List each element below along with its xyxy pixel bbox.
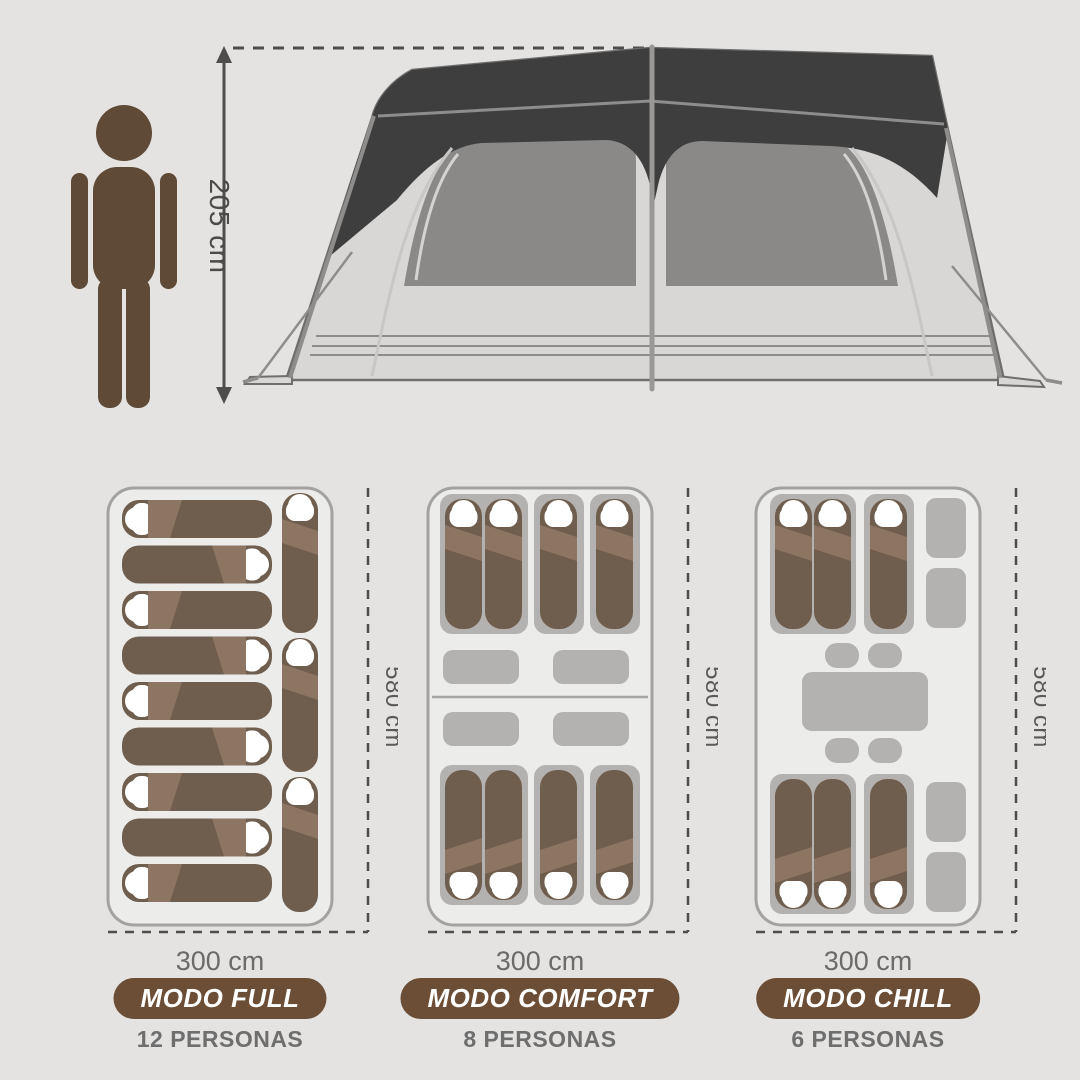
- mode-badge-full: MODO FULL: [113, 978, 326, 1019]
- sleeping-bag-icon: [122, 546, 272, 584]
- sleeping-bag-icon: [540, 499, 577, 629]
- floor-plan-chill: 580 cm: [746, 486, 1046, 941]
- tent-height-label: 205 cm: [204, 179, 235, 274]
- sleeping-bag-icon: [814, 779, 851, 909]
- sleeping-bag-icon: [122, 773, 272, 811]
- floor-plan-full: 580 cm: [98, 486, 398, 941]
- sleeping-bag-icon: [282, 493, 318, 633]
- gear-mat: [443, 650, 519, 684]
- sleeping-bag-icon: [122, 682, 272, 720]
- sleeping-bag-icon: [596, 499, 633, 629]
- sleeping-bag-icon: [775, 499, 812, 629]
- depth-label: 580 cm: [380, 666, 398, 748]
- depth-label: 580 cm: [700, 666, 718, 748]
- sleeping-layout-full: [122, 493, 318, 912]
- sleeping-bag-icon: [540, 770, 577, 900]
- gear-mat: [553, 712, 629, 746]
- sleeping-bag-icon: [814, 499, 851, 629]
- tent-infographic: 205 cm: [0, 0, 1080, 1080]
- sleeping-bag-icon: [596, 770, 633, 900]
- sleeping-bag-icon: [485, 499, 522, 629]
- sleeping-bag-icon: [870, 499, 907, 629]
- sleeping-bag-icon: [122, 728, 272, 766]
- tent-front-illustration: [243, 47, 1062, 389]
- sleeping-bag-icon: [775, 779, 812, 909]
- stool: [868, 643, 902, 668]
- sleeping-bag-icon: [122, 864, 272, 902]
- sleeping-bag-icon: [282, 638, 318, 772]
- sleeping-bag-icon: [122, 500, 272, 538]
- gear-mat: [443, 712, 519, 746]
- sleeping-bag-icon: [122, 591, 272, 629]
- width-label: 300 cm: [496, 946, 585, 977]
- width-label: 300 cm: [176, 946, 265, 977]
- storage-box: [926, 782, 966, 842]
- sleeping-bag-icon: [870, 779, 907, 909]
- persons-count: 6 PERSONAS: [791, 1026, 944, 1053]
- sleeping-bag-icon: [485, 770, 522, 900]
- floor-plan-comfort: 580 cm: [418, 486, 718, 941]
- sleeping-bag-icon: [122, 637, 272, 675]
- depth-label: 580 cm: [1028, 666, 1046, 748]
- gear-mat: [553, 650, 629, 684]
- tent-height-illustration: 205 cm: [0, 0, 1080, 465]
- mode-badge-comfort: MODO COMFORT: [400, 978, 679, 1019]
- tent-right-flap: [998, 376, 1044, 387]
- sleeping-bag-icon: [122, 819, 272, 857]
- storage-box: [926, 568, 966, 628]
- persons-count: 12 PERSONAS: [137, 1026, 304, 1053]
- width-label: 300 cm: [824, 946, 913, 977]
- sleeping-bag-icon: [282, 777, 318, 912]
- storage-box: [926, 852, 966, 912]
- sleeping-bag-icon: [445, 770, 482, 900]
- mode-badge-chill: MODO CHILL: [756, 978, 980, 1019]
- person-icon: [71, 105, 177, 408]
- persons-count: 8 PERSONAS: [463, 1026, 616, 1053]
- table: [802, 672, 928, 731]
- stool: [825, 738, 859, 763]
- sleeping-bag-icon: [445, 499, 482, 629]
- stool: [868, 738, 902, 763]
- storage-box: [926, 498, 966, 558]
- stool: [825, 643, 859, 668]
